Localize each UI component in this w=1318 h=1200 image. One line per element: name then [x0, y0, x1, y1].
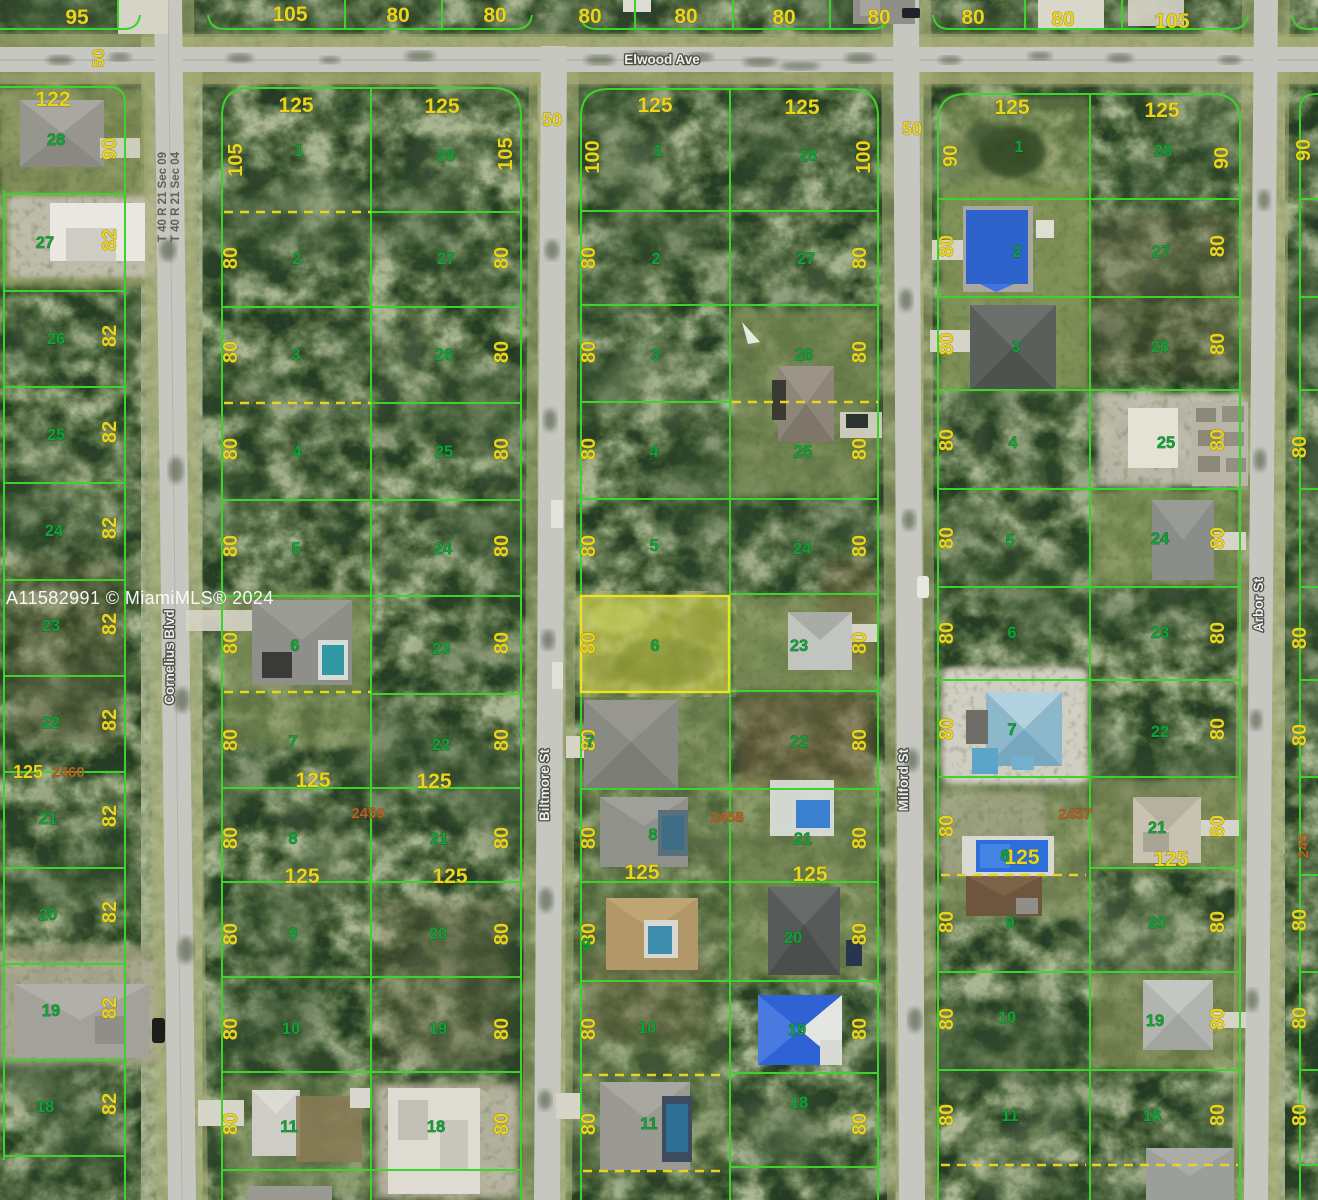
svg-text:125: 125: [13, 762, 43, 782]
svg-text:24: 24: [434, 540, 453, 558]
svg-text:80: 80: [220, 247, 242, 269]
svg-text:25: 25: [435, 443, 453, 461]
svg-text:125: 125: [994, 96, 1029, 119]
svg-text:80: 80: [849, 923, 871, 945]
svg-text:125: 125: [416, 770, 451, 793]
svg-text:82: 82: [99, 613, 121, 635]
svg-text:Elwood Ave: Elwood Ave: [624, 52, 700, 67]
svg-text:T 40 R 21 Sec 04: T 40 R 21 Sec 04: [170, 151, 182, 242]
svg-text:80: 80: [936, 718, 958, 740]
svg-text:5: 5: [1005, 532, 1014, 550]
svg-text:3: 3: [291, 346, 300, 364]
svg-text:125: 125: [424, 95, 459, 118]
svg-text:22: 22: [1151, 723, 1169, 741]
svg-text:80: 80: [1289, 1104, 1311, 1126]
svg-text:80: 80: [220, 535, 242, 557]
svg-text:90: 90: [940, 145, 962, 167]
svg-text:80: 80: [936, 333, 958, 355]
svg-text:105: 105: [225, 143, 247, 176]
svg-text:80: 80: [849, 247, 871, 269]
svg-text:80: 80: [849, 438, 871, 460]
svg-text:80: 80: [491, 827, 513, 849]
svg-text:9: 9: [1005, 914, 1014, 932]
svg-text:80: 80: [578, 1018, 600, 1040]
svg-text:18: 18: [36, 1098, 54, 1116]
svg-text:18: 18: [790, 1094, 808, 1112]
svg-text:125: 125: [1144, 99, 1179, 122]
svg-text:25: 25: [794, 443, 812, 461]
svg-text:4: 4: [649, 443, 659, 461]
svg-text:80: 80: [867, 6, 890, 29]
svg-text:19: 19: [1146, 1012, 1164, 1030]
svg-text:80: 80: [1289, 436, 1311, 458]
svg-text:80: 80: [491, 923, 513, 945]
svg-text:80: 80: [578, 247, 600, 269]
svg-text:80: 80: [1207, 1008, 1229, 1030]
svg-text:80: 80: [1207, 622, 1229, 644]
svg-text:20: 20: [784, 929, 802, 947]
svg-text:80: 80: [1207, 429, 1229, 451]
svg-text:20: 20: [429, 925, 447, 943]
svg-text:80: 80: [220, 632, 242, 654]
svg-text:95: 95: [65, 6, 89, 29]
svg-text:80: 80: [849, 1018, 871, 1040]
svg-text:125: 125: [784, 96, 819, 119]
svg-text:1: 1: [1014, 138, 1023, 156]
svg-text:8: 8: [1000, 847, 1009, 865]
svg-text:5: 5: [291, 540, 300, 558]
svg-text:82: 82: [99, 517, 121, 539]
svg-text:6: 6: [1007, 624, 1016, 642]
svg-text:9: 9: [581, 936, 590, 954]
svg-text:19: 19: [42, 1002, 60, 1020]
svg-text:125: 125: [624, 861, 659, 884]
svg-text:22: 22: [432, 736, 450, 754]
svg-text:80: 80: [220, 827, 242, 849]
svg-text:10: 10: [282, 1020, 300, 1038]
svg-text:80: 80: [849, 1113, 871, 1135]
svg-text:125: 125: [295, 769, 330, 792]
svg-text:82: 82: [99, 901, 121, 923]
svg-text:80: 80: [936, 1008, 958, 1030]
svg-text:82: 82: [99, 325, 121, 347]
svg-text:80: 80: [1207, 911, 1229, 933]
svg-text:80: 80: [936, 911, 958, 933]
svg-text:80: 80: [849, 729, 871, 751]
svg-text:80: 80: [674, 5, 697, 28]
svg-text:80: 80: [491, 535, 513, 557]
svg-text:Biltmore St: Biltmore St: [537, 748, 552, 821]
svg-text:T 40 R 21 Sec 09: T 40 R 21 Sec 09: [157, 152, 169, 242]
svg-text:80: 80: [936, 235, 958, 257]
svg-text:21: 21: [794, 830, 812, 848]
svg-text:80: 80: [491, 729, 513, 751]
svg-text:125: 125: [284, 865, 319, 888]
svg-text:26: 26: [435, 346, 453, 364]
svg-text:27: 27: [1152, 243, 1170, 261]
svg-text:A11582991 © MiamiMLS® 2024: A11582991 © MiamiMLS® 2024: [6, 588, 274, 608]
svg-text:2458: 2458: [710, 809, 743, 826]
svg-text:82: 82: [99, 805, 121, 827]
svg-text:82: 82: [99, 997, 121, 1019]
svg-text:22: 22: [42, 714, 60, 732]
svg-text:19: 19: [429, 1020, 447, 1038]
svg-text:21: 21: [430, 830, 448, 848]
svg-text:80: 80: [1207, 333, 1229, 355]
svg-text:125: 125: [432, 865, 467, 888]
svg-text:20: 20: [39, 906, 57, 924]
svg-text:80: 80: [849, 341, 871, 363]
svg-text:21: 21: [39, 810, 57, 828]
svg-text:82: 82: [99, 229, 121, 251]
svg-text:82: 82: [99, 1093, 121, 1115]
svg-text:100: 100: [582, 140, 604, 173]
svg-text:82: 82: [99, 709, 121, 731]
svg-text:Arbor St: Arbor St: [1251, 577, 1266, 632]
svg-text:82: 82: [99, 421, 121, 443]
svg-text:9: 9: [288, 925, 297, 943]
svg-text:2457: 2457: [1058, 806, 1091, 823]
svg-text:7: 7: [1007, 721, 1016, 739]
svg-text:80: 80: [578, 1113, 600, 1135]
svg-text:80: 80: [1207, 527, 1229, 549]
svg-text:80: 80: [578, 827, 600, 849]
svg-text:8: 8: [648, 826, 657, 844]
svg-text:122: 122: [35, 88, 70, 111]
svg-text:80: 80: [220, 923, 242, 945]
svg-text:27: 27: [437, 250, 455, 268]
svg-text:28: 28: [437, 147, 455, 165]
svg-text:Milford St: Milford St: [896, 748, 911, 811]
svg-text:25: 25: [47, 426, 65, 444]
svg-text:26: 26: [795, 346, 813, 364]
svg-text:125: 125: [792, 863, 827, 886]
svg-text:1: 1: [294, 142, 303, 160]
svg-text:27: 27: [36, 234, 54, 252]
svg-text:125: 125: [1153, 848, 1188, 871]
svg-text:80: 80: [1051, 8, 1074, 31]
svg-text:125: 125: [637, 94, 672, 117]
svg-text:26: 26: [47, 330, 65, 348]
svg-text:50: 50: [542, 110, 562, 130]
svg-text:11: 11: [280, 1118, 297, 1136]
svg-text:80: 80: [483, 4, 506, 27]
svg-text:18: 18: [427, 1118, 445, 1136]
svg-text:8: 8: [288, 830, 297, 848]
svg-text:24: 24: [1151, 530, 1170, 548]
svg-text:50: 50: [89, 49, 108, 68]
svg-text:245: 245: [1295, 833, 1312, 858]
svg-text:80: 80: [220, 341, 242, 363]
svg-text:80: 80: [578, 535, 600, 557]
svg-text:19: 19: [788, 1021, 806, 1039]
svg-text:2460: 2460: [51, 764, 84, 781]
svg-text:18: 18: [1143, 1107, 1161, 1125]
svg-text:22: 22: [790, 733, 808, 751]
svg-text:80: 80: [578, 341, 600, 363]
svg-text:28: 28: [1154, 142, 1172, 160]
svg-text:125: 125: [1004, 846, 1039, 869]
svg-text:80: 80: [1207, 815, 1229, 837]
svg-text:23: 23: [1151, 624, 1169, 642]
svg-text:3: 3: [650, 346, 659, 364]
svg-text:23: 23: [42, 617, 60, 635]
svg-text:80: 80: [936, 622, 958, 644]
svg-text:80: 80: [1289, 1007, 1311, 1029]
svg-text:23: 23: [432, 640, 450, 658]
svg-text:80: 80: [936, 429, 958, 451]
svg-text:100: 100: [853, 140, 875, 173]
svg-text:80: 80: [491, 1018, 513, 1040]
svg-text:6: 6: [290, 637, 299, 655]
svg-text:80: 80: [491, 438, 513, 460]
svg-text:5: 5: [649, 537, 658, 555]
svg-text:80: 80: [1207, 718, 1229, 740]
svg-text:6: 6: [650, 637, 659, 655]
svg-text:10: 10: [638, 1019, 656, 1037]
svg-text:80: 80: [220, 438, 242, 460]
svg-text:80: 80: [220, 1113, 242, 1135]
svg-text:90: 90: [1211, 147, 1233, 169]
svg-text:26: 26: [1151, 338, 1169, 356]
svg-text:90: 90: [1293, 139, 1315, 161]
svg-text:21: 21: [1148, 819, 1166, 837]
svg-text:80: 80: [849, 827, 871, 849]
svg-text:80: 80: [936, 815, 958, 837]
svg-text:80: 80: [936, 527, 958, 549]
svg-text:7: 7: [288, 733, 297, 751]
svg-text:105: 105: [272, 3, 307, 26]
svg-text:90: 90: [99, 138, 121, 160]
svg-text:80: 80: [491, 341, 513, 363]
svg-text:80: 80: [772, 6, 795, 29]
svg-text:80: 80: [1289, 627, 1311, 649]
svg-text:80: 80: [1289, 909, 1311, 931]
svg-text:80: 80: [1289, 724, 1311, 746]
svg-text:Cornelius Blvd: Cornelius Blvd: [162, 609, 177, 704]
svg-text:80: 80: [849, 535, 871, 557]
svg-text:80: 80: [936, 1104, 958, 1126]
svg-text:2459: 2459: [351, 805, 384, 822]
svg-text:80: 80: [491, 1113, 513, 1135]
svg-text:80: 80: [578, 632, 600, 654]
svg-text:105: 105: [495, 137, 517, 170]
svg-text:80: 80: [578, 438, 600, 460]
svg-text:80: 80: [578, 5, 601, 28]
svg-text:80: 80: [386, 4, 409, 27]
svg-text:125: 125: [278, 94, 313, 117]
svg-text:25: 25: [1157, 434, 1175, 452]
svg-text:80: 80: [849, 632, 871, 654]
svg-text:80: 80: [220, 1018, 242, 1040]
svg-text:105: 105: [1154, 10, 1189, 33]
svg-text:80: 80: [961, 6, 984, 29]
svg-text:7: 7: [585, 733, 594, 751]
svg-text:2: 2: [651, 250, 660, 268]
svg-text:24: 24: [793, 540, 812, 558]
svg-text:2: 2: [1012, 243, 1021, 261]
svg-text:2: 2: [292, 250, 301, 268]
svg-text:80: 80: [1207, 1104, 1229, 1126]
svg-text:80: 80: [220, 729, 242, 751]
svg-text:4: 4: [1008, 434, 1018, 452]
svg-text:24: 24: [45, 522, 64, 540]
svg-text:28: 28: [799, 147, 817, 165]
svg-text:10: 10: [998, 1009, 1016, 1027]
svg-text:80: 80: [491, 632, 513, 654]
svg-text:20: 20: [1148, 914, 1166, 932]
svg-text:80: 80: [1207, 235, 1229, 257]
svg-text:50: 50: [902, 119, 922, 139]
svg-text:1: 1: [653, 142, 662, 160]
svg-text:3: 3: [1011, 338, 1020, 356]
svg-text:28: 28: [47, 131, 65, 149]
svg-text:11: 11: [640, 1115, 657, 1133]
svg-text:23: 23: [790, 637, 808, 655]
svg-text:11: 11: [1001, 1107, 1018, 1125]
svg-text:4: 4: [292, 443, 302, 461]
svg-text:27: 27: [797, 250, 815, 268]
svg-text:80: 80: [491, 247, 513, 269]
